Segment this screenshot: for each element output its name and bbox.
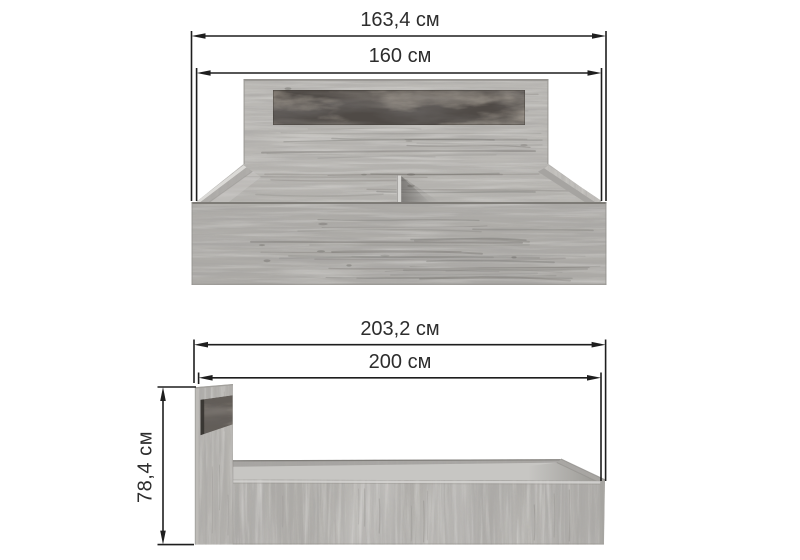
svg-text:203,2 см: 203,2 см <box>360 318 439 340</box>
svg-text:78,4 см: 78,4 см <box>135 431 157 503</box>
svg-text:163,4 см: 163,4 см <box>360 9 439 31</box>
svg-text:160 см: 160 см <box>369 45 432 67</box>
svg-text:200 см: 200 см <box>369 351 432 373</box>
